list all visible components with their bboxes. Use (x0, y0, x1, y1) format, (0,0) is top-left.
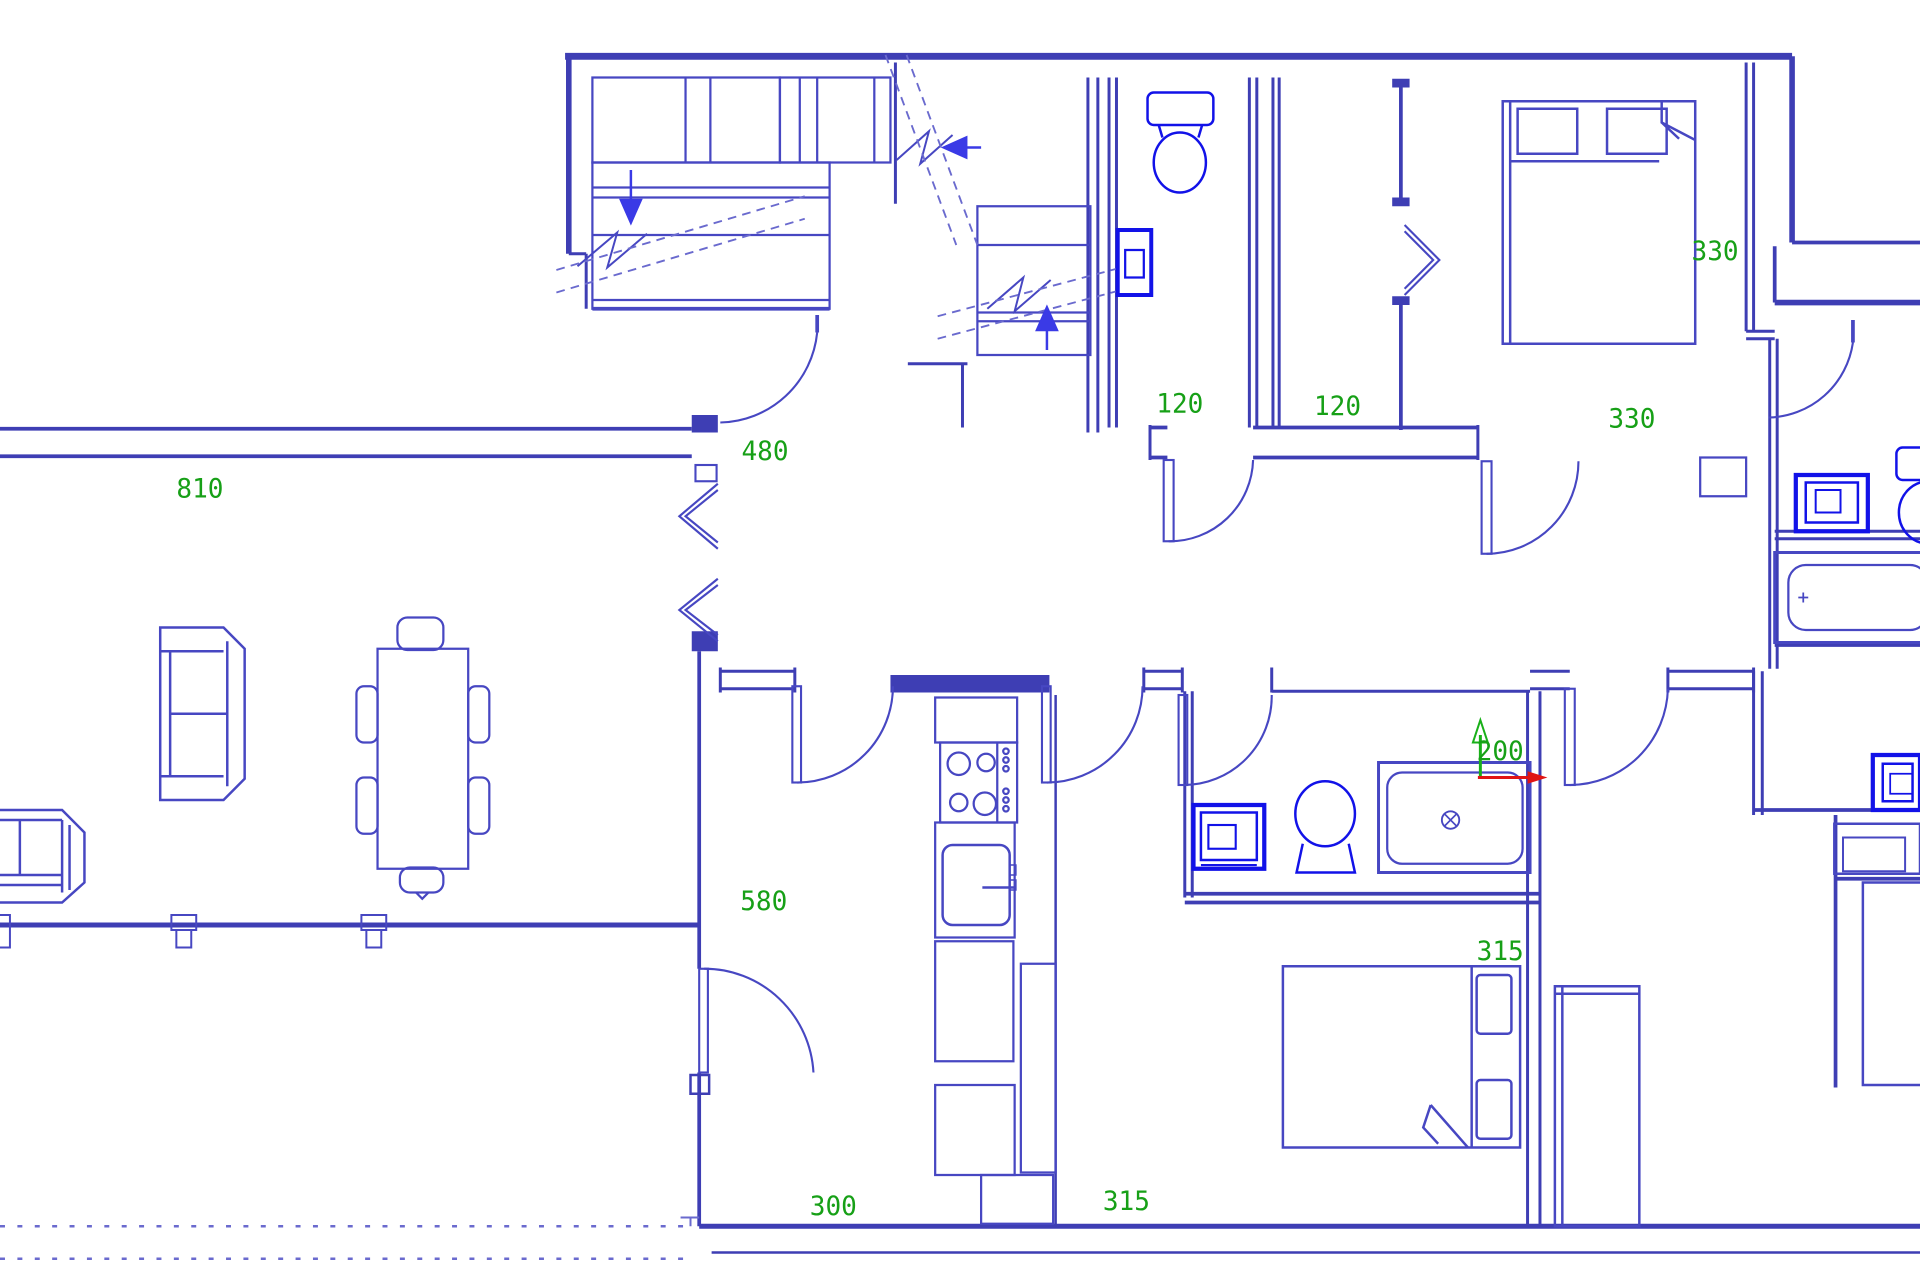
sink-right-icon (1873, 755, 1920, 810)
floor-plan-page: 810480120120330330580200315315300 (0, 0, 1920, 1280)
bed-fold-corner (1423, 1105, 1468, 1148)
living-room (0, 618, 489, 948)
floor-plan-canvas: 810480120120330330580200315315300 (0, 0, 1920, 1280)
bathtub-right-icon (1775, 553, 1920, 643)
dimension-label: 315 (1103, 1187, 1150, 1217)
dimension-label: 120 (1156, 389, 1203, 419)
faucet-icon (1798, 593, 1808, 603)
loveseat-icon (160, 628, 244, 801)
kitchen-cabinet-top (935, 698, 1017, 743)
window-posts (0, 915, 386, 948)
dining-table-icon (356, 618, 489, 899)
corner-sink-icon (1796, 475, 1868, 531)
door-arc-room-300 (704, 969, 813, 1073)
staircase (556, 55, 1121, 355)
door-arc-living (720, 333, 817, 423)
stair-direction-arrows (621, 138, 1057, 351)
dimension-label: 330 (1692, 237, 1739, 267)
kitchen (935, 698, 1055, 1224)
corner-toilet-icon (1896, 448, 1920, 544)
furniture-right (1834, 824, 1920, 1085)
bed-top-right (1503, 101, 1695, 344)
door-arc-corridor-1 (797, 686, 893, 782)
cabinet-hall-right (1700, 458, 1746, 497)
stove-icon (940, 743, 1017, 823)
door-arc-bathroom (1184, 695, 1272, 785)
bifold-door-closet (1405, 225, 1440, 295)
dimension-label: 480 (741, 437, 788, 467)
chair-icon (400, 868, 443, 893)
door-arc-wc (1169, 460, 1253, 541)
wardrobe-icon (1555, 986, 1639, 1226)
chair-icon (356, 686, 377, 742)
dimension-label: 300 (810, 1192, 857, 1222)
wall-sink-icon (1118, 230, 1152, 295)
kitchen-sink-icon (935, 823, 1016, 938)
chair-icon (468, 686, 489, 742)
toilet-icon (1295, 781, 1355, 872)
bedroom-bottom (1283, 966, 1639, 1226)
refrigerator-icon (1021, 964, 1056, 1173)
sofa-partial-icon (0, 810, 84, 903)
kitchen-cabinet-2 (935, 941, 1013, 1061)
bifold-door-living (679, 465, 717, 641)
bed-bottom (1283, 966, 1520, 1147)
dimension-labels-layer: 810480120120330330580200315315300 (176, 237, 1738, 1222)
dimension-label: 330 (1608, 404, 1655, 434)
toilet-icon (1148, 93, 1214, 193)
door-arc-wc-right (1768, 343, 1852, 418)
kitchen-cabinet-bottom (981, 1175, 1053, 1224)
dimension-label: 120 (1314, 392, 1361, 422)
dimension-label: 315 (1477, 937, 1524, 967)
dimension-label: 810 (176, 474, 223, 504)
wc-room (1118, 93, 1214, 296)
chair-icon (468, 778, 489, 834)
doors (679, 225, 1853, 1073)
dimension-label: 200 (1477, 737, 1524, 767)
bed-right-partial (1863, 883, 1920, 1086)
right-bathroom (1775, 448, 1920, 1086)
chair-icon (397, 618, 443, 651)
door-arc-hall-right (1570, 689, 1668, 785)
kitchen-cabinet-3 (935, 1085, 1014, 1175)
dimension-label: 580 (740, 887, 787, 917)
dashed-property-line (0, 1218, 699, 1259)
door-arc-corridor-2 (1047, 686, 1143, 782)
chair-icon (356, 778, 377, 834)
sink-icon (1193, 805, 1264, 869)
door-arc-bedroom (1487, 461, 1579, 554)
walls (0, 56, 1920, 1252)
